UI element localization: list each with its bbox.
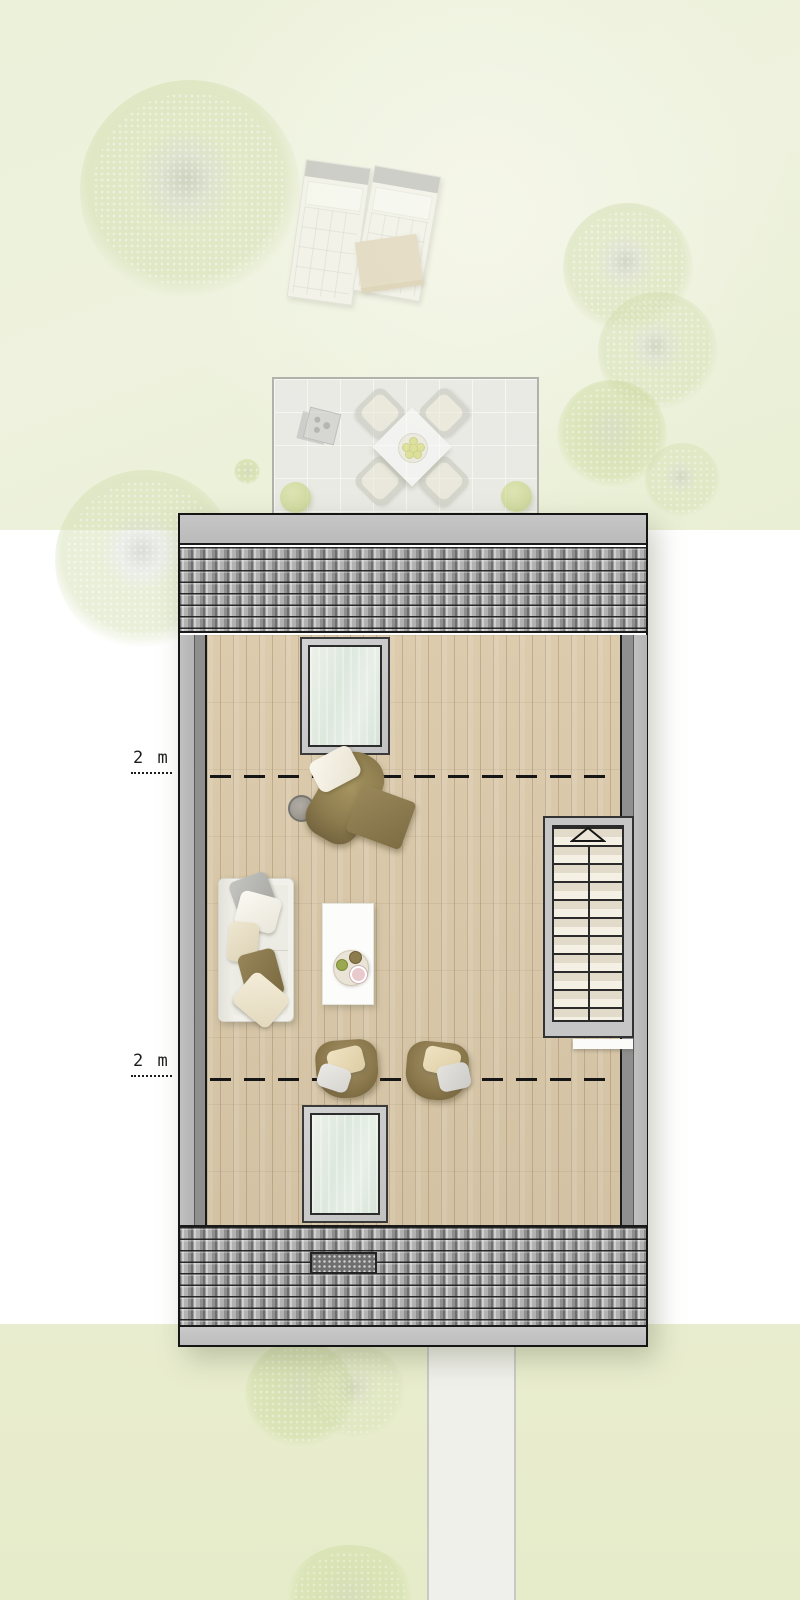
roof-tiles-top [180,547,646,633]
wall-left-outer [180,635,195,1225]
dim-label-upper: 2 m [131,750,172,774]
dimension-line-upper [210,775,618,778]
lounger-quilting [292,206,360,300]
skylight-bottom [302,1105,388,1223]
lantern-dot [314,416,321,423]
plant-sprig [336,959,348,971]
stairs-up-arrow-icon [570,827,606,843]
bowl [349,951,362,964]
skylight-top [300,637,390,755]
lounger-towel [355,234,423,293]
centerpiece-dot [409,444,418,453]
tree-bottom-2 [310,1345,405,1440]
large-tree [80,80,300,300]
roof-eave-bottom [180,1325,646,1345]
stair-landing [573,1039,633,1049]
staircase-steps [552,825,624,1022]
wall-left-inner [195,635,207,1225]
roof-vent [310,1252,377,1274]
wall-right-outer [633,635,647,1225]
teacup [350,966,367,983]
floor-plan-canvas: 2 m 2 m [0,0,800,1600]
tree-right-4 [645,443,720,518]
footpath [427,1347,516,1600]
lantern-dot [322,421,330,429]
dim-label-lower: 2 m [131,1053,172,1077]
roof-tiles-bottom [180,1225,646,1325]
skylight-glass [308,645,382,747]
roof-ridge-top [180,515,646,545]
small-bush-left [234,459,260,485]
table-centerpiece [398,433,428,463]
bush-left [280,482,311,513]
bush-right [501,481,532,512]
skylight-glass [310,1113,380,1215]
lantern-dot [313,426,320,433]
garden-bottom [0,1324,800,1600]
